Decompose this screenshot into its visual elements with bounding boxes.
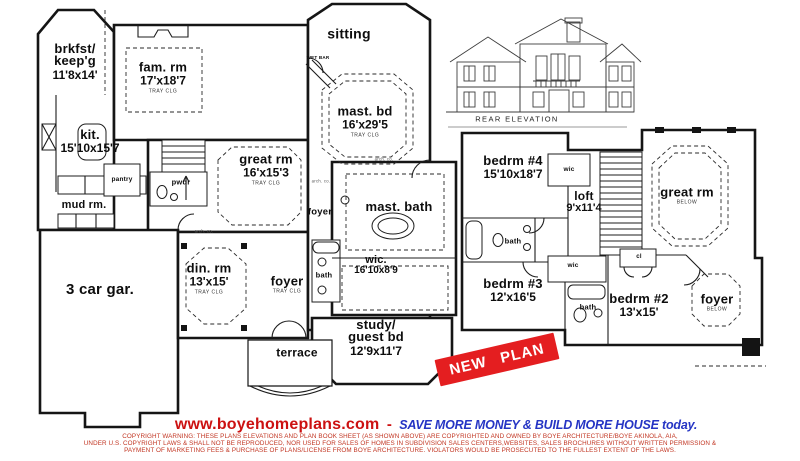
stairs-second-floor	[600, 152, 642, 255]
room-label-terrace: terrace	[276, 347, 317, 358]
plan-linework	[0, 0, 800, 461]
room-label-bedrm-2: bedrm #2 13'x15'	[609, 293, 668, 319]
room-label-mast-bd: mast. bd 16'x29'5 TRAY CLG	[337, 106, 392, 139]
footer-website-line: www.boyehomeplans.com - SAVE MORE MONEY …	[0, 416, 800, 434]
room-label-loft: loft 9'x11'4	[566, 191, 601, 215]
arch-annotation: arch. co.	[195, 229, 214, 234]
arch-annotation: arch. co.	[375, 157, 394, 162]
room-label-study-guest-bd: study/ guest bd 12'9x11'7	[348, 319, 404, 357]
room-label-bath-upper: bath	[505, 237, 522, 244]
copyright-line-1: COPYRIGHT WARNING: THESE PLANS ELEVATION…	[0, 433, 800, 440]
arch-annotation: arch. co.	[312, 179, 331, 184]
room-label-fam-rm: fam. rm 17'x18'7 TRAY CLG	[139, 62, 187, 95]
room-label-foyer-main: foyer TRAY CLG	[271, 275, 304, 294]
terrace-steps	[250, 386, 330, 396]
room-label-kit: kit. 15'10x15'7	[60, 129, 119, 155]
porch-column	[742, 338, 760, 356]
plan-sheet: brkfst/ keep'g 11'8x14' fam. rm 17'x18'7…	[0, 0, 800, 461]
rear-elevation-drawing	[446, 18, 641, 127]
room-label-foyer-hall: foyer	[308, 207, 332, 216]
copyright-line-2: UNDER U.S. COPYRIGHT LAWS & SHALL NOT BE…	[0, 440, 800, 447]
rear-elevation-caption: REAR ELEVATION	[475, 115, 559, 124]
room-label-pwdr: pwdr	[172, 178, 191, 185]
room-label-great-rm: great rm 16'x15'3 TRAY CLG	[239, 154, 293, 187]
room-label-wic-4: wic	[563, 167, 574, 173]
footer-tagline: SAVE MORE MONEY & BUILD MORE HOUSE today…	[399, 418, 697, 432]
room-label-great-rm-below: great rm BELOW	[660, 186, 714, 205]
room-label-wic-23: wic	[567, 263, 578, 269]
room-label-sitting: sitting	[327, 27, 370, 40]
room-label-foyer-below: foyer BELOW	[701, 293, 734, 312]
room-label-brkfst-keepg: brkfst/ keep'g 11'8x14'	[52, 43, 97, 81]
first-floor-linework	[38, 4, 456, 427]
website-link[interactable]: www.boyehomeplans.com	[175, 416, 380, 433]
room-label-bath-first: bath	[316, 271, 333, 278]
room-label-cl: cl	[636, 255, 641, 261]
room-label-wic-first: wic. 16'10x8'9	[354, 255, 398, 277]
room-label-bedrm-4: bedrm #4 15'10x18'7	[483, 155, 542, 181]
stairs-first-floor	[162, 140, 205, 172]
room-label-bedrm-3: bedrm #3 12'x16'5	[483, 278, 542, 304]
copyright-text: COPYRIGHT WARNING: THESE PLANS ELEVATION…	[0, 433, 800, 454]
room-label-mast-bath: mast. bath	[365, 201, 432, 213]
room-label-bath-lower: bath	[580, 303, 597, 310]
room-label-pantry: pantry	[111, 177, 132, 183]
copyright-line-3: PAYMENT OF MARKETING FEES & PURCHASE OF …	[0, 447, 800, 454]
room-label-din-rm: din. rm 13'x15' TRAY CLG	[187, 263, 232, 296]
footer-dash: -	[384, 416, 395, 433]
room-label-wet-bar: WET BAR	[307, 56, 330, 60]
room-label-mud-rm: mud rm.	[62, 200, 107, 210]
room-label-3-car-gar: 3 car gar.	[66, 283, 134, 297]
